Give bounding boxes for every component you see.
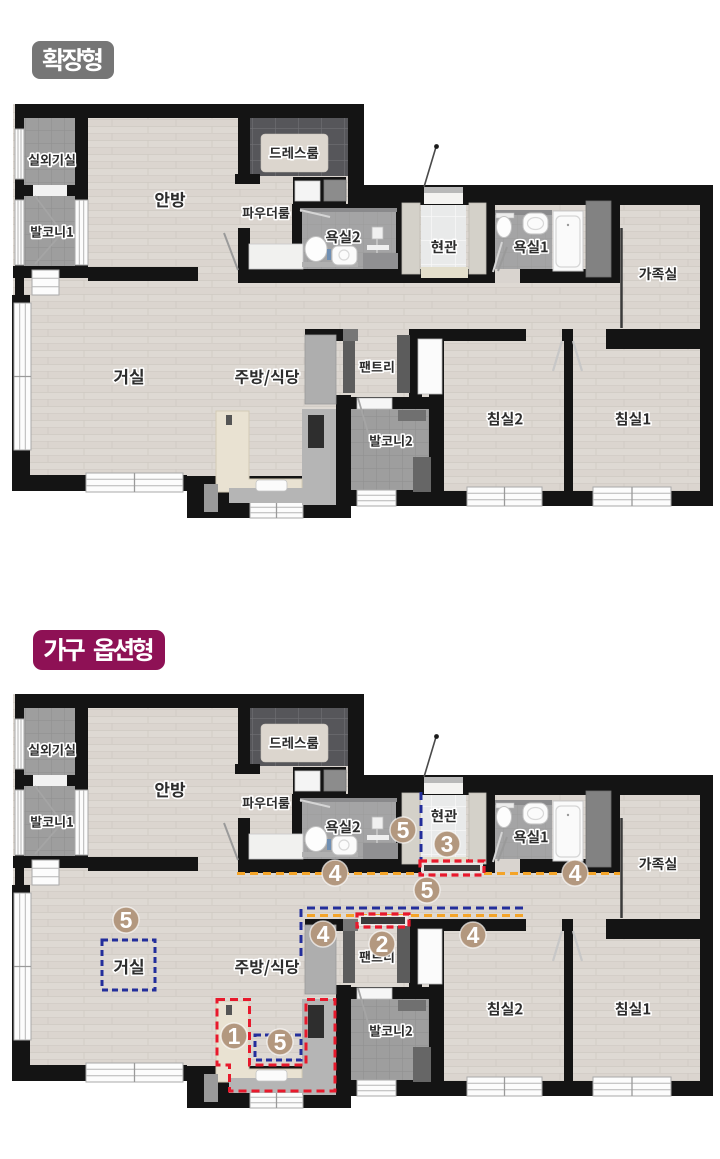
- svg-text:5: 5: [421, 877, 434, 903]
- svg-text:4: 4: [317, 921, 330, 947]
- svg-text:5: 5: [397, 817, 410, 843]
- svg-text:1: 1: [228, 1023, 241, 1049]
- svg-text:5: 5: [274, 1029, 287, 1055]
- svg-text:4: 4: [329, 860, 342, 886]
- svg-text:4: 4: [467, 922, 480, 948]
- svg-text:3: 3: [441, 831, 454, 857]
- svg-text:4: 4: [569, 860, 582, 886]
- svg-text:2: 2: [376, 931, 389, 957]
- svg-text:5: 5: [120, 907, 133, 933]
